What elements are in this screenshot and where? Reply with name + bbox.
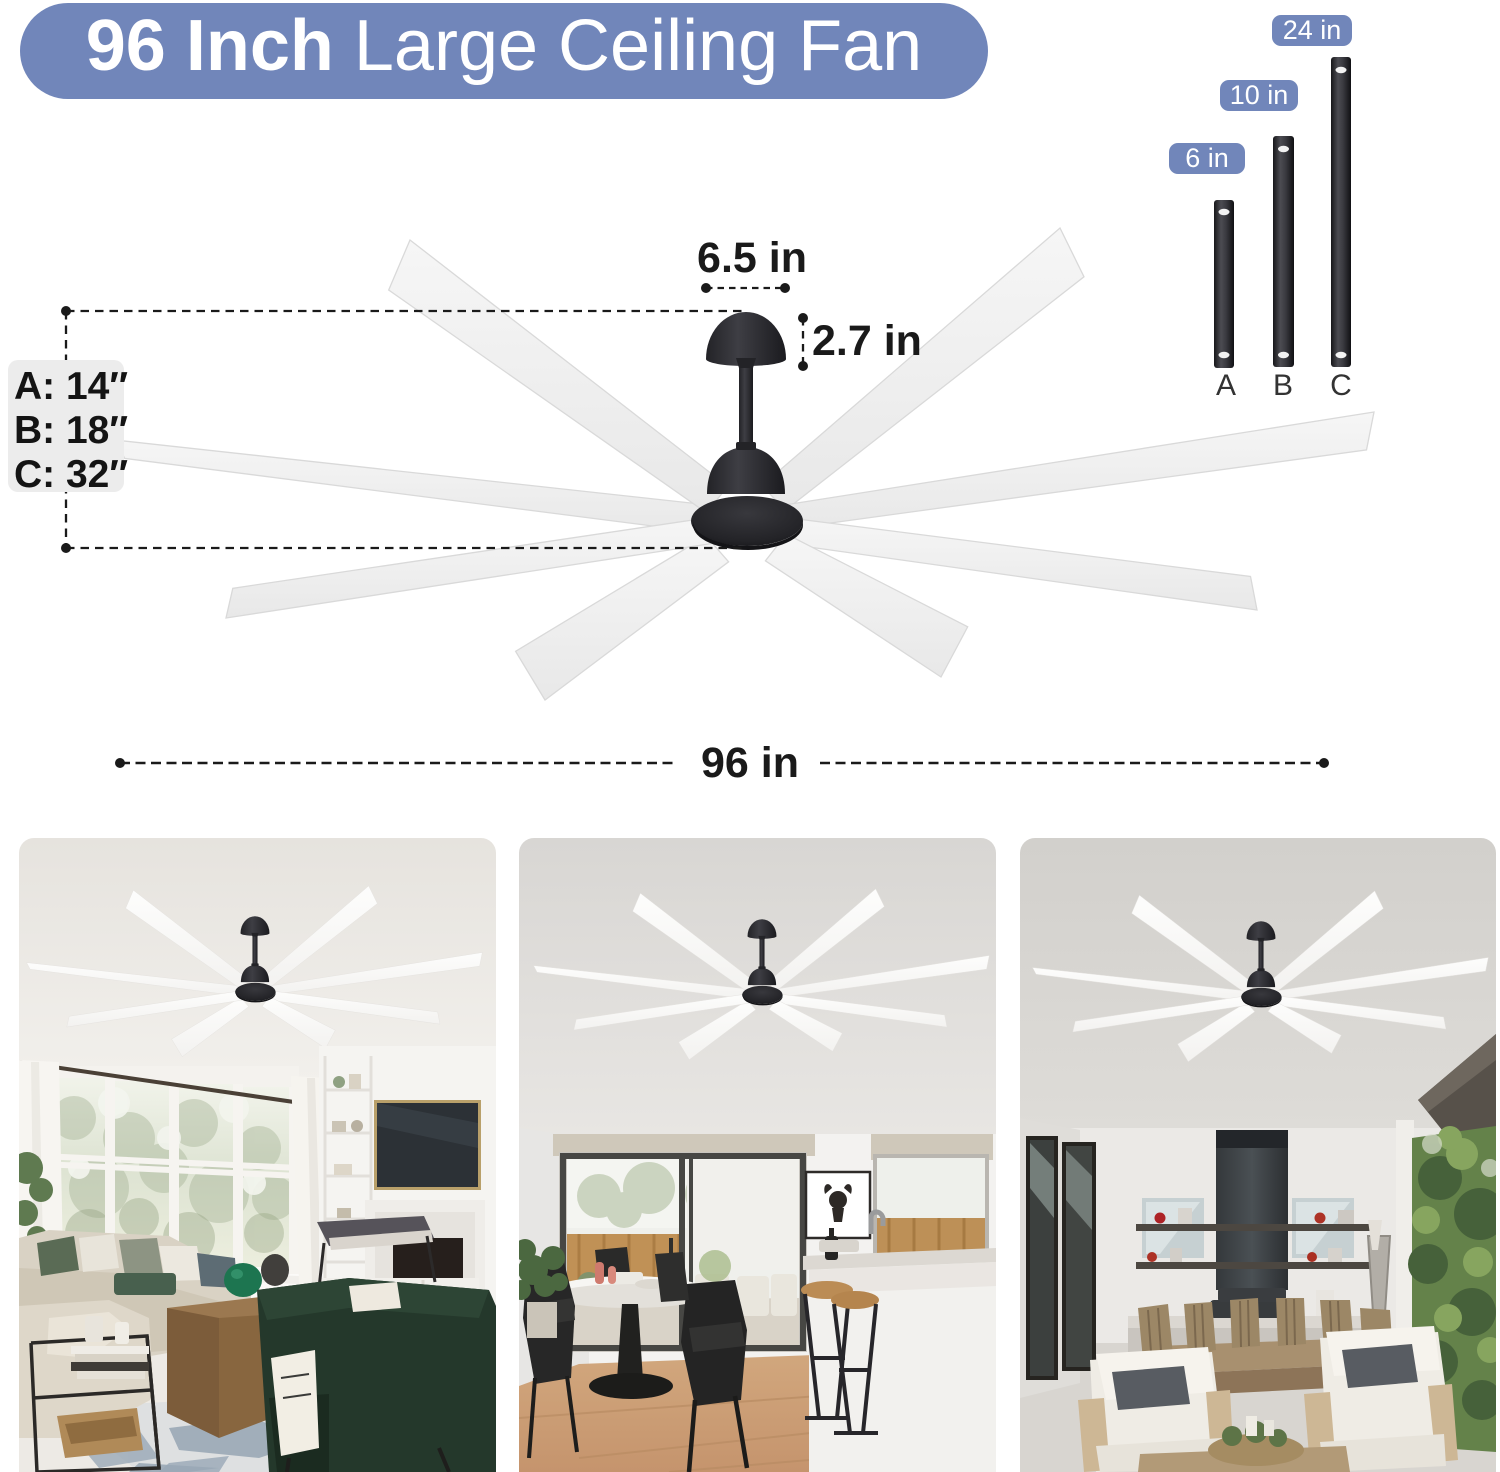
svg-text:A: 14″: A: 14″ [14,365,128,408]
svg-text:C: 32″: C: 32″ [14,453,128,496]
svg-text:B: 18″: B: 18″ [14,409,128,452]
svg-text:2.7 in: 2.7 in [812,317,922,365]
svg-text:96 in: 96 in [701,739,799,787]
svg-text:6.5 in: 6.5 in [697,234,807,282]
